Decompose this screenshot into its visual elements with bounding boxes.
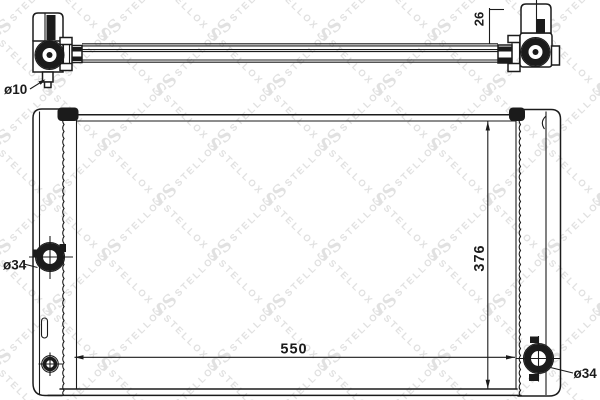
dim-label-left-port: ø34 <box>3 258 27 273</box>
left-pipe-slot <box>47 15 56 40</box>
drawing-canvas: 26 ø10 <box>0 0 600 400</box>
arrowhead-top <box>486 122 490 131</box>
dim-label-crossbar-depth: 26 <box>472 12 487 26</box>
dim-label-core-width: 550 <box>280 342 307 358</box>
arrowhead-left <box>75 355 84 359</box>
port-tab <box>529 374 538 381</box>
core-right-serrated-edge <box>519 111 520 397</box>
left-tank-slot <box>42 318 48 338</box>
right-pipe-slot <box>537 19 545 33</box>
dimension-crossbar-depth: 26 <box>472 8 505 44</box>
right-connector-block <box>498 47 512 52</box>
dimension-top-pipe: ø10 <box>4 79 46 97</box>
leader-line <box>551 368 574 374</box>
crossbar <box>82 44 498 62</box>
dim-label-top-pipe: ø10 <box>4 82 27 97</box>
arrowhead-bottom <box>486 380 490 389</box>
dimension-core-width: 550 <box>75 342 516 360</box>
right-fitting <box>498 0 560 72</box>
right-connector-block <box>498 58 512 63</box>
right-flange-bottom-tab <box>508 64 520 72</box>
top-right-mount-boss <box>509 108 525 122</box>
left-bottom-nipple <box>45 82 52 88</box>
right-side-tab <box>552 46 560 65</box>
right-tank-notch <box>542 116 546 129</box>
dim-label-right-port: ø34 <box>574 366 598 381</box>
top-left-mount-boss <box>58 108 79 122</box>
right-outlet-port: ø34 <box>517 336 598 382</box>
left-boss-center <box>47 52 53 58</box>
left-flange-top-tab <box>60 38 72 45</box>
left-connector-block <box>72 57 82 62</box>
radiator-technical-drawing: SSTELLOXSSTELLOXSSTELLOXSSTELLOXSSTELLOX… <box>0 0 600 400</box>
dimension-core-height: 376 <box>472 122 490 389</box>
drain-port <box>39 353 63 377</box>
left-connector-block <box>72 47 82 52</box>
right-boss-center <box>533 49 539 55</box>
right-flange-top-tab <box>508 36 520 43</box>
arrowhead-right <box>506 355 515 359</box>
front-view: ø34 ø34 550 <box>3 108 597 397</box>
left-fitting <box>33 13 82 88</box>
left-flange-bottom-tab <box>60 64 72 71</box>
left-inlet-port: ø34 <box>3 236 73 279</box>
port-tab <box>530 337 538 344</box>
top-view: 26 ø10 <box>4 0 560 97</box>
dim-label-core-height: 376 <box>472 244 488 271</box>
